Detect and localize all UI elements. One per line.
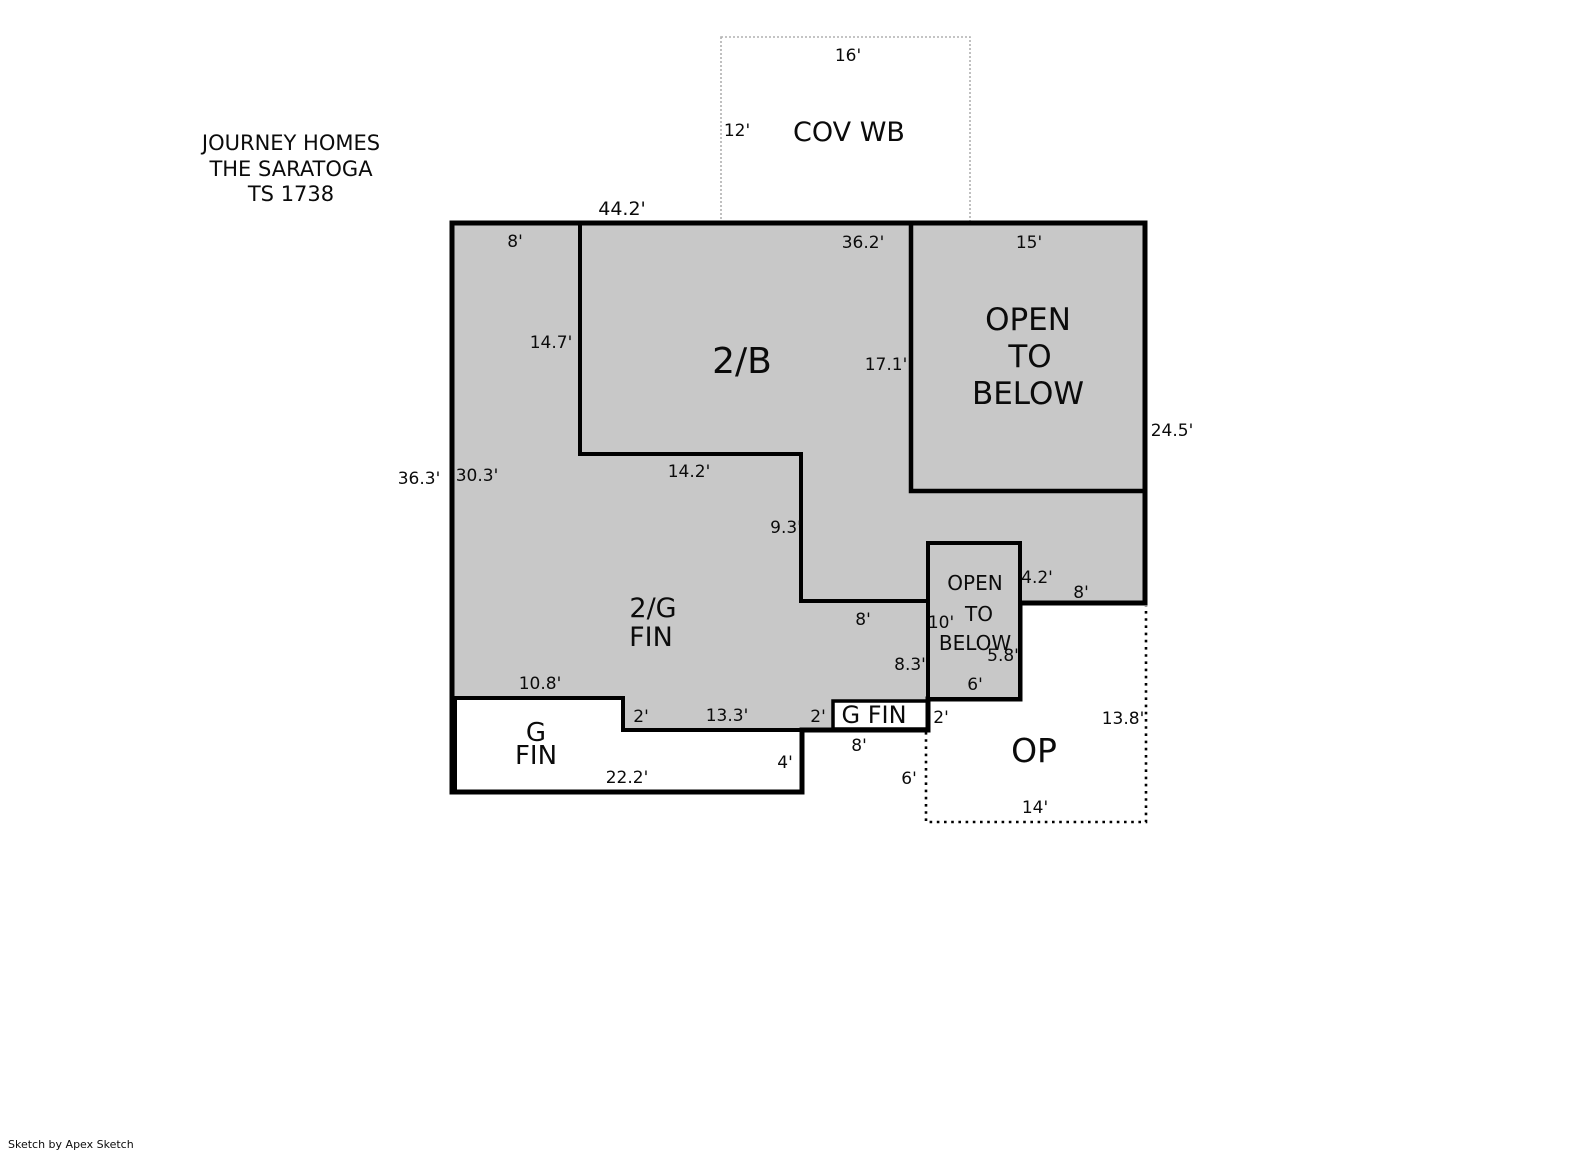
dim-step-v1: 14.7' <box>530 333 573 353</box>
dim-right-upper: 24.5' <box>1151 421 1194 441</box>
room-label-g-fin-small: G FIN <box>841 701 906 729</box>
dim-sotb-right-lower: 5.8' <box>987 646 1019 666</box>
dim-otb-top: 15' <box>1016 233 1042 253</box>
dim-gfin-right: 4' <box>777 753 793 773</box>
dim-gfin-bottom: 22.2' <box>606 768 649 788</box>
dim-notch-left: 2' <box>633 707 649 727</box>
plan-title-line1: JOURNEY HOMES <box>200 131 380 155</box>
room-label-2g-line1: 2/G <box>629 593 676 624</box>
dim-top-left: 8' <box>507 232 523 252</box>
room-label-cov-wb: COV WB <box>793 117 905 148</box>
dim-right-lower: 8' <box>1073 583 1089 603</box>
room-label-2g-line2: FIN <box>629 622 673 653</box>
room-label-otb-small-line1: OPEN <box>947 571 1002 595</box>
plan-title-line3: TS 1738 <box>247 182 334 206</box>
floorplan-sketch: JOURNEY HOMES THE SARATOGA TS 1738 16' 1… <box>0 0 1585 1163</box>
dim-otb-left: 17.1' <box>865 355 908 375</box>
dim-gfin-small-left: 2' <box>810 707 826 727</box>
dim-left-total: 36.3' <box>398 469 441 489</box>
sketch-credit: Sketch by Apex Sketch <box>8 1138 134 1151</box>
dim-left-upper: 30.3' <box>456 466 499 486</box>
dim-gfin-top: 10.8' <box>519 674 562 694</box>
dim-step-h1: 14.2' <box>668 462 711 482</box>
room-label-2b: 2/B <box>712 341 772 382</box>
dim-step-v2: 9.3' <box>770 518 802 538</box>
dim-op-bottom: 14' <box>1022 798 1048 818</box>
room-label-otb-large-line1: OPEN <box>985 302 1071 338</box>
dim-gfin-small-bottom: 8' <box>851 736 867 756</box>
room-label-op: OP <box>1011 731 1057 770</box>
dim-top-right: 36.2' <box>842 233 885 253</box>
dim-top-total: 44.2' <box>598 198 646 220</box>
dim-op-left: 6' <box>901 769 917 789</box>
dim-notch-bottom: 13.3' <box>706 706 749 726</box>
dim-gfin2-right: 8.3' <box>894 655 926 675</box>
dim-op-right: 13.8' <box>1102 709 1145 729</box>
plan-title-line2: THE SARATOGA <box>208 157 373 181</box>
room-label-g-fin-large-line2: FIN <box>515 741 557 771</box>
dim-cov-left: 12' <box>724 121 750 141</box>
room-label-otb-large-line3: BELOW <box>972 376 1084 412</box>
dim-sotb-bottom: 6' <box>967 675 983 695</box>
floorplan-canvas: JOURNEY HOMES THE SARATOGA TS 1738 16' 1… <box>0 0 1585 1163</box>
dim-gfin-small-right: 2' <box>933 708 949 728</box>
room-label-otb-small-line2: TO <box>964 602 993 626</box>
dim-cov-top: 16' <box>835 46 861 66</box>
dim-step-h2: 8' <box>855 610 871 630</box>
room-label-otb-large-line2: TO <box>1007 339 1051 375</box>
dim-sotb-left: 10' <box>928 613 954 633</box>
dim-sotb-right-upper: 4.2' <box>1021 568 1053 588</box>
